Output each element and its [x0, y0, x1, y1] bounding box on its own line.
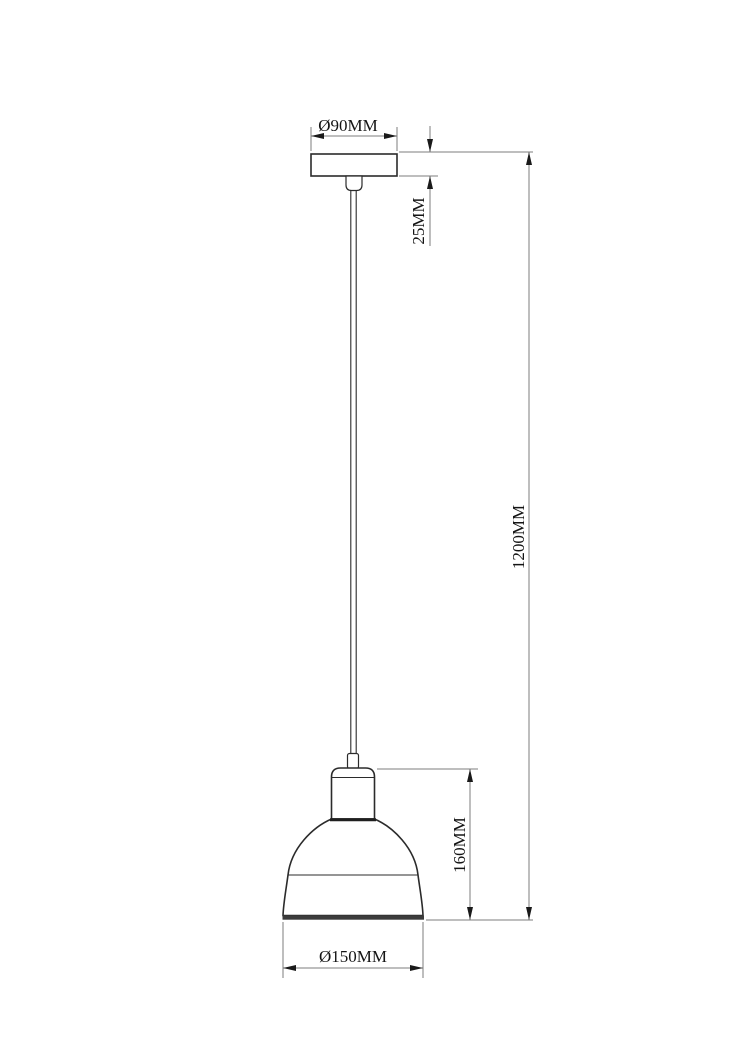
technical-drawing-svg: Ø90MM 25MM 1200MM 160MM	[0, 0, 750, 1062]
drawing-canvas: Ø90MM 25MM 1200MM 160MM	[0, 0, 750, 1062]
arrow-right-icon	[384, 133, 397, 139]
arrow-right-icon	[410, 965, 423, 971]
arrow-up-icon	[526, 152, 532, 165]
dimension-canopy-diameter: Ø90MM	[311, 116, 397, 151]
arrow-up-icon	[427, 176, 433, 189]
arrow-down-icon	[526, 907, 532, 920]
arrow-down-icon	[427, 139, 433, 152]
dimension-suspension-length: 1200MM	[399, 152, 533, 920]
cord-connector	[346, 176, 362, 191]
dimension-canopy-height: 25MM	[399, 126, 438, 246]
arrow-down-icon	[467, 907, 473, 920]
pendant-lamp-drawing	[283, 154, 425, 920]
dim-canopy-height-label: 25MM	[409, 197, 428, 244]
ceiling-canopy	[311, 154, 397, 176]
arrow-up-icon	[467, 769, 473, 782]
socket-cup	[332, 768, 375, 819]
dim-suspension-length-label: 1200MM	[509, 505, 528, 569]
shade-bottom-rim	[283, 916, 425, 920]
dim-shade-diameter-label: Ø150MM	[319, 947, 387, 966]
cord-grip	[348, 754, 359, 769]
dim-shade-height-label: 160MM	[450, 817, 469, 873]
shade-body	[283, 819, 423, 916]
dim-canopy-diameter-label: Ø90MM	[318, 116, 378, 135]
dimension-shade-diameter: Ø150MM	[283, 922, 423, 978]
arrow-left-icon	[283, 965, 296, 971]
